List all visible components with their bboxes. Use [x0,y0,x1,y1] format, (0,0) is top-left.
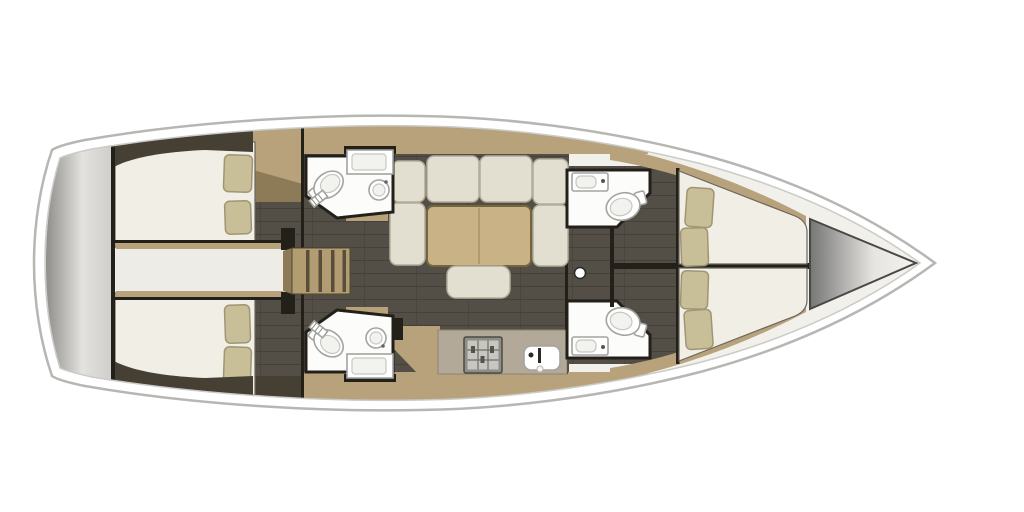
sink-icon [366,328,386,348]
stair-jamb-top [281,228,295,250]
stair-left-cap [283,248,292,294]
yacht-floorplan [0,0,1024,512]
sink-icon [572,173,608,191]
galley-sink-icon [524,346,560,372]
mast-post [575,268,586,279]
aft-cabin-bottom-floor [253,293,303,377]
passage-trim-top [116,243,283,249]
salon-ottoman [447,266,510,298]
passage-wall-top [114,240,286,243]
sink-icon [572,337,608,355]
engine-passage [116,249,283,291]
sink-icon [369,180,389,200]
stair-jamb-bottom [281,292,295,314]
stove-icon [464,337,502,373]
passage-trim-bottom [116,291,283,297]
transom-bulkhead [111,136,115,394]
passage-wall-bottom [114,297,286,300]
